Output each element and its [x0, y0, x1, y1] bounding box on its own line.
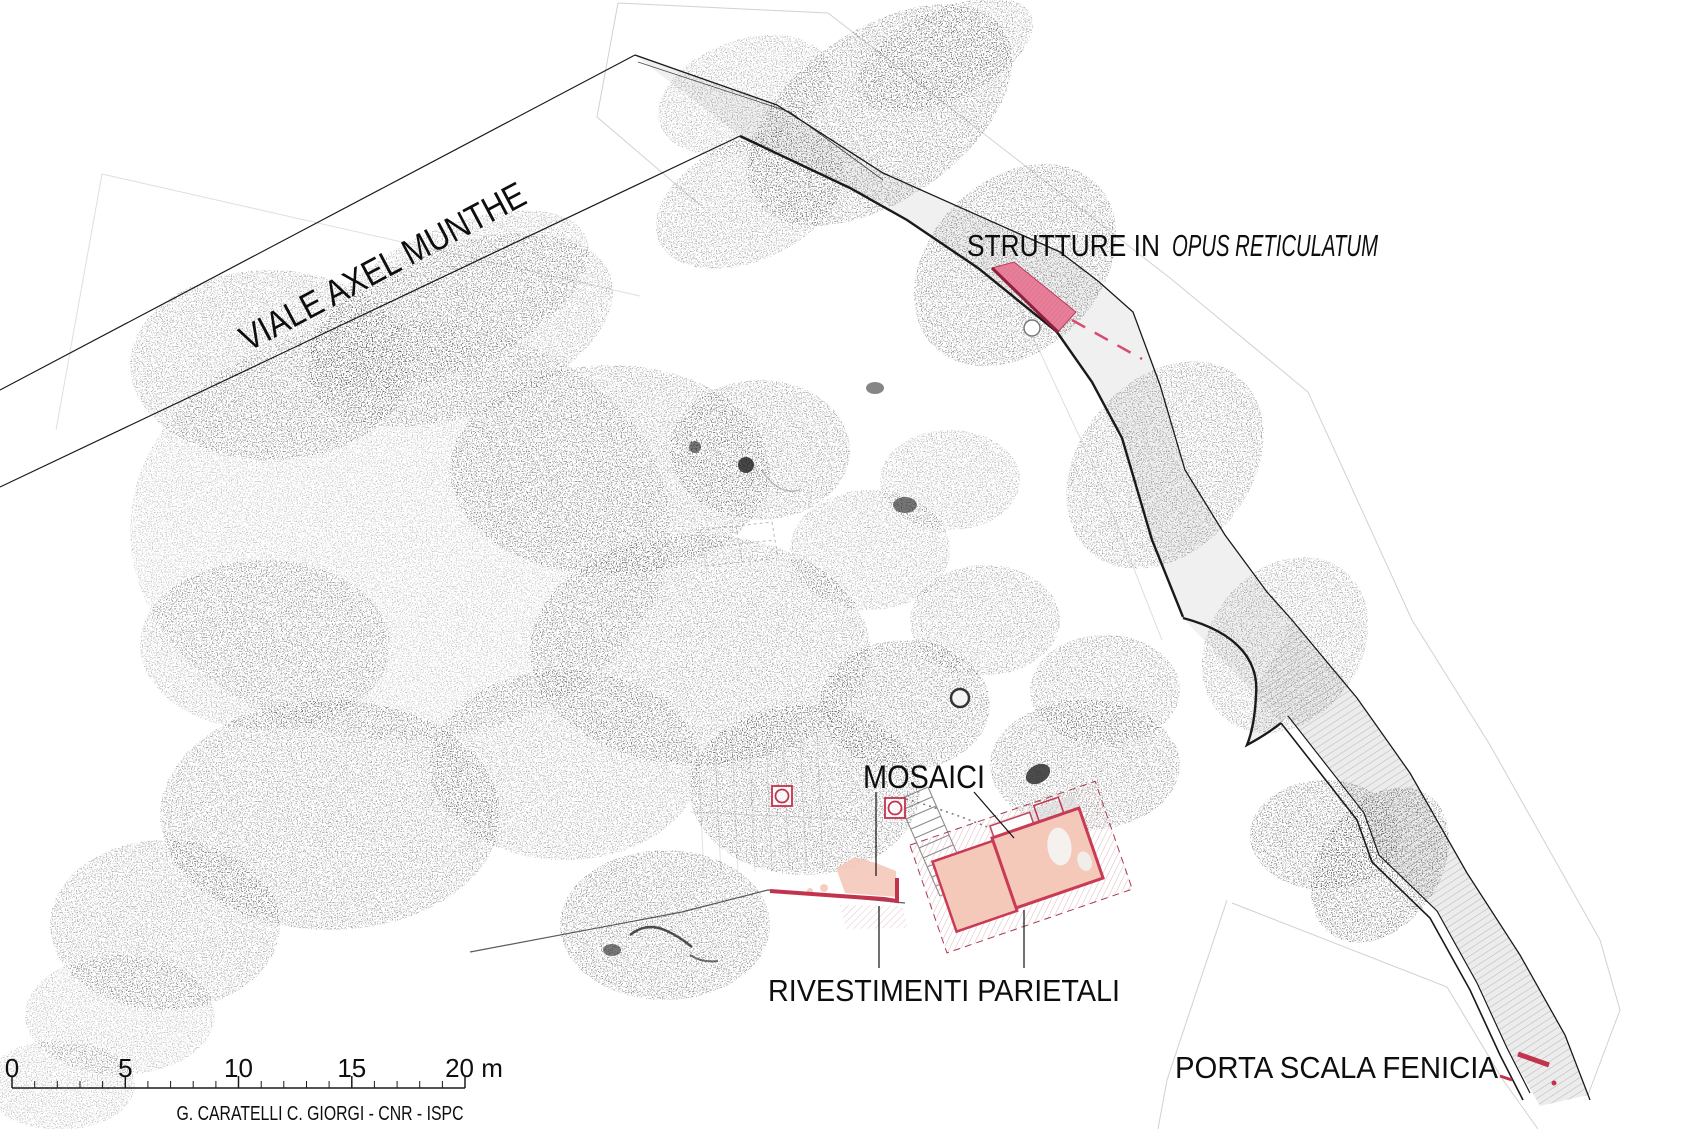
- label-strutture-prefix: STRUTTURE IN: [967, 228, 1160, 263]
- site-plan: VIALE AXEL MUNTHE STRUTTURE IN OPUS RETI…: [0, 0, 1699, 1129]
- scale-label-5: 5: [118, 1053, 132, 1083]
- label-rivestimenti-parietali: RIVESTIMENTI PARIETALI: [768, 973, 1120, 1008]
- credit-text: G. CARATELLI C. GIORGI - CNR - ISPC: [177, 1103, 464, 1125]
- scale-label-10: 10: [224, 1053, 253, 1083]
- label-strutture-italic: OPUS RETICULATUM: [1172, 228, 1378, 263]
- scale-label-15: 15: [337, 1053, 366, 1083]
- scale-label-20m: 20 m: [445, 1053, 503, 1083]
- trunk-on-wall: [1024, 320, 1040, 336]
- site-plan-canvas: VIALE AXEL MUNTHE STRUTTURE IN OPUS RETI…: [0, 0, 1699, 1129]
- scale-label-0: 0: [5, 1053, 19, 1083]
- label-porta-scala-fenicia: PORTA SCALA FENICIA: [1175, 1050, 1498, 1085]
- label-mosaici: MOSAICI: [863, 759, 985, 795]
